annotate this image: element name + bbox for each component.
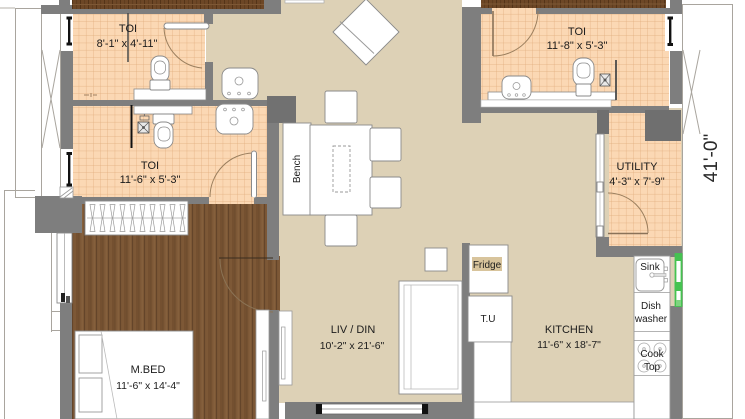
svg-text:11'-6" x 5'-3": 11'-6" x 5'-3"	[120, 174, 181, 186]
svg-text:8'-1" x 4'-11": 8'-1" x 4'-11"	[97, 38, 158, 50]
svg-text:T.U: T.U	[481, 314, 496, 325]
svg-text:Bench: Bench	[292, 155, 303, 183]
svg-text:11'-6" x 18'-7": 11'-6" x 18'-7"	[537, 339, 601, 351]
svg-text:TOI: TOI	[568, 26, 586, 38]
svg-text:Top: Top	[644, 362, 661, 373]
svg-text:11'-6" x 14'-4": 11'-6" x 14'-4"	[116, 380, 180, 392]
svg-text:M.BED: M.BED	[131, 364, 166, 376]
svg-text:washer: washer	[634, 314, 668, 325]
svg-text:TOI: TOI	[119, 23, 137, 35]
svg-text:KITCHEN: KITCHEN	[545, 324, 593, 336]
svg-text:Sink: Sink	[640, 262, 660, 273]
svg-text:41'-0": 41'-0"	[701, 134, 722, 182]
svg-text:Cook: Cook	[640, 349, 664, 360]
svg-text:TOI: TOI	[141, 160, 159, 172]
svg-text:Dish: Dish	[641, 301, 661, 312]
svg-text:Fridge: Fridge	[473, 260, 502, 271]
svg-text:10'-2" x 21'-6": 10'-2" x 21'-6"	[320, 340, 385, 352]
svg-text:UTILITY: UTILITY	[617, 161, 659, 173]
svg-text:LIV / DIN: LIV / DIN	[331, 324, 376, 336]
svg-text:11'-8" x 5'-3": 11'-8" x 5'-3"	[547, 40, 608, 52]
svg-text:4'-3" x 7'-9": 4'-3" x 7'-9"	[609, 176, 665, 188]
